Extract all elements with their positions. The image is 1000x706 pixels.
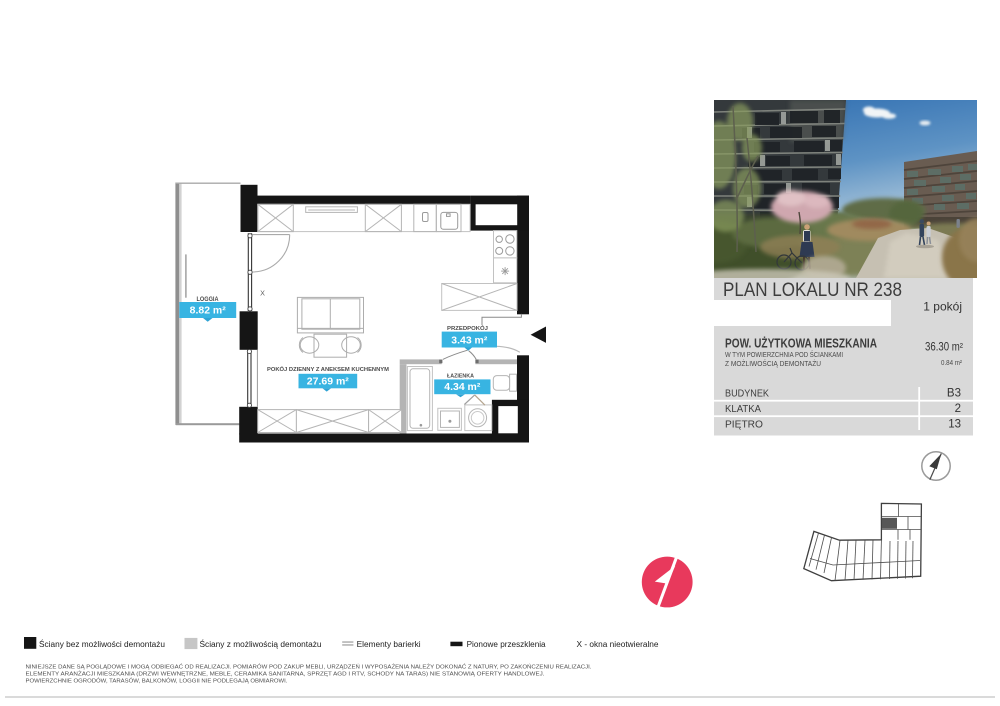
- svg-text:4.34 m²: 4.34 m²: [444, 382, 481, 393]
- svg-text:BUDYNEK: BUDYNEK: [725, 389, 769, 400]
- svg-text:X: X: [260, 289, 265, 298]
- svg-text:Ściany bez możliwości demontaż: Ściany bez możliwości demontażu: [39, 640, 165, 649]
- svg-text:B3: B3: [947, 388, 961, 400]
- svg-text:PIĘTRO: PIĘTRO: [725, 420, 763, 431]
- svg-text:PLAN LOKALU NR 238: PLAN LOKALU NR 238: [723, 279, 902, 301]
- svg-text:Ściany z możliwością demontażu: Ściany z możliwością demontażu: [200, 640, 322, 649]
- svg-text:0.84 m²: 0.84 m²: [941, 358, 962, 367]
- svg-text:LOGGIA: LOGGIA: [197, 297, 220, 303]
- svg-text:X - okna nieotwieralne: X - okna nieotwieralne: [577, 640, 660, 649]
- svg-text:27.69 m²: 27.69 m²: [307, 377, 350, 388]
- svg-text:W TYM POWIERZCHNIA POD ŚCIANKA: W TYM POWIERZCHNIA POD ŚCIANKAMI: [725, 350, 843, 359]
- svg-text:KLATKA: KLATKA: [725, 404, 761, 415]
- svg-text:NINIEJSZE DANE SĄ POGLĄDOWE I: NINIEJSZE DANE SĄ POGLĄDOWE I MOGĄ ODBIE…: [26, 664, 592, 671]
- svg-text:POKÓJ DZIENNY Z ANEKSEM KUCHEN: POKÓJ DZIENNY Z ANEKSEM KUCHENNYM: [267, 365, 389, 373]
- svg-text:Pionowe przeszklenia: Pionowe przeszklenia: [467, 640, 547, 649]
- svg-text:POW. UŻYTKOWA MIESZKANIA: POW. UŻYTKOWA MIESZKANIA: [725, 336, 877, 351]
- svg-text:1 pokój: 1 pokój: [923, 300, 962, 314]
- svg-text:13: 13: [948, 419, 961, 431]
- svg-text:8.82 m²: 8.82 m²: [190, 306, 227, 317]
- svg-text:ŁAZIENKA: ŁAZIENKA: [447, 374, 475, 380]
- svg-text:ELEMENTY ARANŻACJI MIESZKANIA: ELEMENTY ARANŻACJI MIESZKANIA (DRZWI WEW…: [26, 671, 545, 678]
- svg-text:3.43 m²: 3.43 m²: [451, 336, 488, 347]
- svg-text:36.30 m²: 36.30 m²: [925, 342, 963, 354]
- svg-text:2: 2: [955, 403, 961, 415]
- svg-text:Elementy barierki: Elementy barierki: [357, 640, 421, 649]
- svg-text:POWIERZCHNIE OGRODÓW, TARASÓW,: POWIERZCHNIE OGRODÓW, TARASÓW, BALKONÓW,…: [26, 678, 288, 685]
- svg-text:Z MOŻLIWOŚCIĄ DEMONTAŻU: Z MOŻLIWOŚCIĄ DEMONTAŻU: [725, 359, 821, 368]
- svg-text:PRZEDPOKÓJ: PRZEDPOKÓJ: [447, 324, 488, 332]
